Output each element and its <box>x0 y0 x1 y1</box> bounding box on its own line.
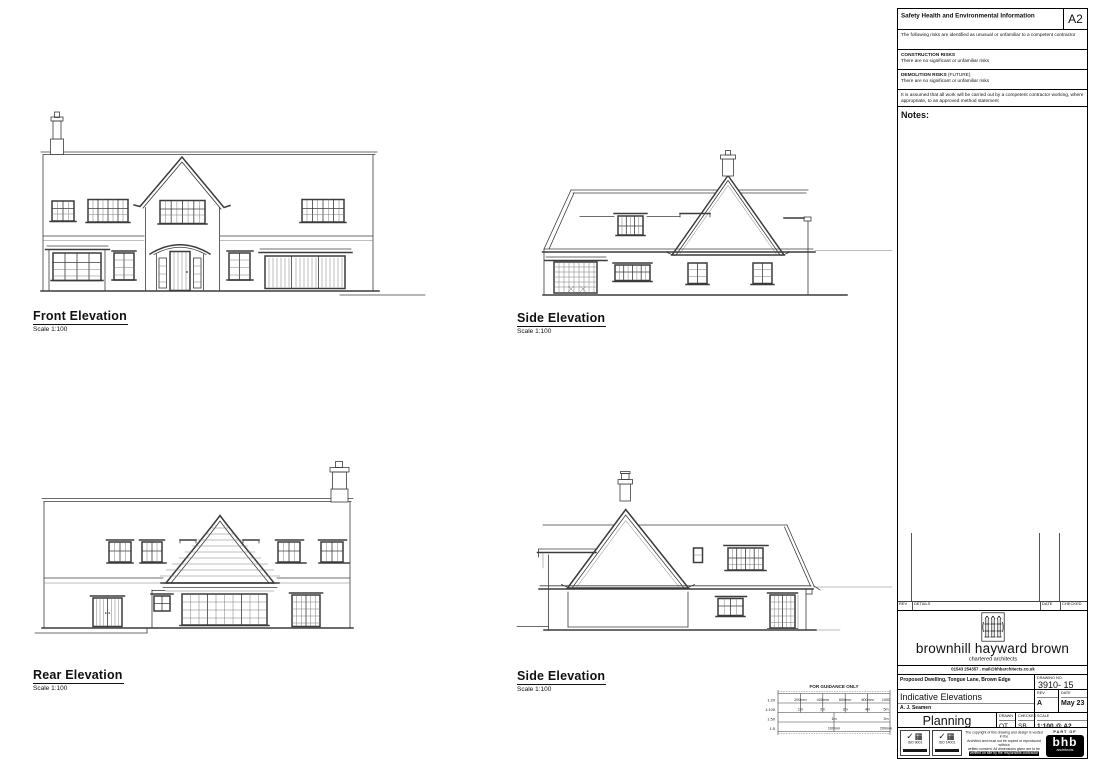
drawing-no-label: DRAWING NO. <box>1037 676 1087 680</box>
iso-badge-bar <box>935 749 959 752</box>
construction-risks-body: There are no significant or unfamiliar r… <box>901 58 989 64</box>
scale-bar-title: FOR GUIDANCE ONLY <box>809 684 858 689</box>
drawing-no-value: 3910- 15 <box>1037 681 1087 690</box>
date-value: May 23 <box>1061 698 1087 707</box>
demolition-risks-body: There are no significant or unfamiliar r… <box>901 78 989 84</box>
svg-text:400mm: 400mm <box>817 698 829 702</box>
svg-text:200mm: 200mm <box>794 698 806 702</box>
firm-name: brownhill hayward brown <box>898 642 1087 656</box>
side-elevation-2-caption: Side Elevation Scale 1:100 <box>517 667 606 693</box>
rev-value: A <box>1037 698 1058 707</box>
notes-label: Notes: <box>901 110 1087 120</box>
rear-elevation-caption: Rear Elevation Scale 1:100 <box>33 666 124 692</box>
scale-value: 1:100 @ A2 <box>1037 721 1087 728</box>
iso-14001-label: ISO 14001 <box>933 741 961 745</box>
side-elevation-2-drawing <box>510 470 895 670</box>
assumption-text: It is assumed that all work will be carr… <box>901 92 1087 104</box>
drawn-value: OT <box>999 721 1015 728</box>
svg-text:2m: 2m <box>820 708 825 712</box>
construction-risks-box: CONSTRUCTION RISKS There are no signific… <box>898 50 1087 70</box>
title-block-panel: Safety Health and Environmental Informat… <box>897 8 1088 759</box>
checkmark-icon: ✓ <box>906 731 914 741</box>
bhb-logo-sub: architects <box>1046 748 1084 752</box>
project-name: Proposed Dwelling, Tongue Lane, Brown Ed… <box>900 677 1034 683</box>
svg-text:1m: 1m <box>798 708 803 712</box>
copyright-line: Architect and must not be copied or repr… <box>967 739 1041 747</box>
iso-14001-badge: ✓▦ ISO 14001 <box>932 730 962 756</box>
scale-label: SCALE <box>1037 714 1087 718</box>
firm-contact: 01543 254357 . mail@bhbarchitects.co.uk <box>898 667 1087 671</box>
date-header: DATE <box>1042 602 1060 606</box>
bhb-logo: bhb architects <box>1046 735 1084 757</box>
client-name: A. J. Seamen <box>900 705 1034 711</box>
bhb-logo-block: PART OF bhb architects <box>1045 730 1085 756</box>
svg-text:4m: 4m <box>865 708 870 712</box>
copyright-line: written consent. All dimensions given ar… <box>968 748 1040 752</box>
copyright-note: The copyright of this drawing and design… <box>964 730 1043 756</box>
side-elevation-2-scale: Scale 1:100 <box>517 686 606 693</box>
iso-9001-badge: ✓▦ ISO 9001 <box>900 730 930 756</box>
sheet-info-title: Safety Health and Environmental Informat… <box>901 12 1063 19</box>
svg-text:3m: 3m <box>843 708 848 712</box>
svg-text:1:5: 1:5 <box>770 726 775 731</box>
status-row: Planning DRAWN OT CHECKED SB SCALE 1:100… <box>898 713 1087 728</box>
panel-footer: ✓▦ ISO 9001 ✓▦ ISO 14001 The copyright o… <box>898 728 1087 758</box>
firm-tagline: chartered architects <box>898 656 1087 662</box>
rev-header: REV <box>899 602 912 606</box>
copyright-line: The copyright of this drawing and design… <box>965 731 1043 739</box>
demolition-risks-heading: DEMOLITION RISKS <box>901 72 947 78</box>
front-elevation-scale: Scale 1:100 <box>33 326 128 333</box>
iso-9001-label: ISO 9001 <box>901 741 929 745</box>
revision-column-line <box>911 533 912 601</box>
details-header: DETAILS <box>914 602 1040 606</box>
side-elevation-1-scale: Scale 1:100 <box>517 328 606 335</box>
svg-text:5m: 5m <box>883 708 888 712</box>
side-elevation-1-caption: Side Elevation Scale 1:100 <box>517 309 606 335</box>
demolition-risks-suffix: (FUTURE) <box>948 72 970 78</box>
front-elevation-drawing <box>30 110 430 310</box>
checkmark-icon: ✓ <box>938 731 946 741</box>
qr-icon: ▦ <box>915 731 924 741</box>
firm-crest-icon <box>981 612 1005 642</box>
revision-column-line <box>1039 533 1040 601</box>
svg-text:1:20: 1:20 <box>767 698 775 703</box>
sheet-info-header: Safety Health and Environmental Informat… <box>898 9 1087 30</box>
firm-contact-row: 01543 254357 . mail@bhbarchitects.co.uk <box>898 666 1087 675</box>
rear-elevation-drawing <box>30 460 390 660</box>
rear-elevation-label: Rear Elevation <box>33 668 124 684</box>
svg-text:200mm: 200mm <box>880 727 892 731</box>
bhb-logo-text: bhb <box>1046 736 1084 748</box>
svg-text:1:100: 1:100 <box>765 707 776 712</box>
sheet-size-badge: A2 <box>1063 9 1087 29</box>
svg-text:1:50: 1:50 <box>767 717 775 722</box>
checked-value: SB <box>1018 721 1034 728</box>
notes-area: Notes: <box>898 107 1087 602</box>
drawn-label: DRAWN <box>999 714 1015 718</box>
copyright-line-highlighted: verified on site by the responsible cont… <box>968 752 1038 756</box>
construction-risks-heading: CONSTRUCTION RISKS <box>901 52 955 58</box>
firm-logo-block: brownhill hayward brown chartered archit… <box>898 611 1087 666</box>
scale-bar: FOR GUIDANCE ONLY 1:20 1:100 1:50 1:5 20… <box>758 680 895 742</box>
svg-text:2m: 2m <box>883 717 888 721</box>
side-elevation-1-label: Side Elevation <box>517 311 606 327</box>
svg-text:1m: 1m <box>831 717 836 721</box>
svg-text:800mm: 800mm <box>861 698 873 702</box>
assumption-box: It is assumed that all work will be carr… <box>898 90 1087 107</box>
iso-badge-bar <box>903 749 927 752</box>
checked-label: CHECKED <box>1018 714 1034 718</box>
rear-elevation-scale: Scale 1:100 <box>33 685 124 692</box>
checked-header: CHECKED <box>1062 602 1087 606</box>
side-elevation-2-label: Side Elevation <box>517 669 606 685</box>
demolition-risks-box: DEMOLITION RISKS (FUTURE) There are no s… <box>898 70 1087 90</box>
project-row: Proposed Dwelling, Tongue Lane, Brown Ed… <box>898 675 1087 690</box>
front-elevation-caption: Front Elevation Scale 1:100 <box>33 307 128 333</box>
title-row: Indicative Elevations A. J. Seamen REV A… <box>898 690 1087 713</box>
revision-column-line <box>1059 533 1060 601</box>
rev-label: REV <box>1037 691 1058 695</box>
risk-intro-box: The following risks are identified as un… <box>898 30 1087 50</box>
svg-text:600mm: 600mm <box>839 698 851 702</box>
part-of-label: PART OF <box>1045 730 1085 734</box>
revision-table-header: REV DETAILS DATE CHECKED <box>898 602 1087 611</box>
date-label: DATE <box>1061 691 1087 695</box>
svg-text:100mm: 100mm <box>828 727 840 731</box>
risk-intro-text: The following risks are identified as un… <box>901 32 1087 38</box>
status-value: Planning <box>898 713 996 727</box>
drawing-title: Indicative Elevations <box>898 690 1034 704</box>
qr-icon: ▦ <box>947 731 956 741</box>
svg-text:1000: 1000 <box>882 698 890 702</box>
front-elevation-label: Front Elevation <box>33 309 128 325</box>
